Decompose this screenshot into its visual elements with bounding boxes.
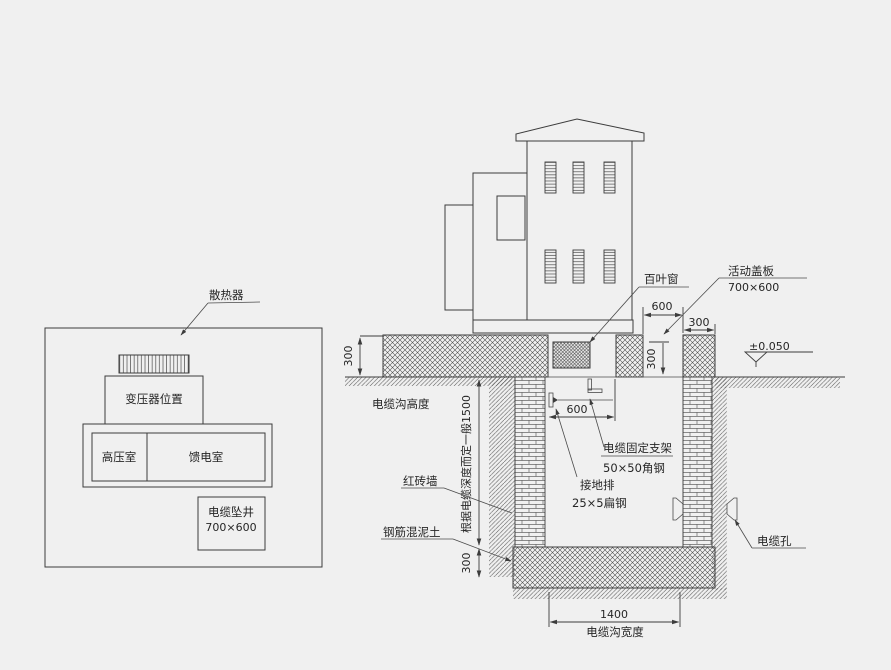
louver-window-block bbox=[553, 342, 590, 368]
earth-band-left bbox=[489, 377, 515, 577]
plan-radiator bbox=[119, 355, 189, 373]
dim-600-bracket: 600 bbox=[567, 403, 588, 416]
cable-shaft-size: 700×600 bbox=[205, 521, 256, 534]
brick-wall-left bbox=[515, 377, 545, 547]
ground-bar-label: 接地排 bbox=[580, 478, 615, 492]
brick-wall-right bbox=[683, 377, 712, 547]
brick-wall-label: 红砖墙 bbox=[403, 474, 438, 488]
bracket-label: 电缆固定支架 bbox=[603, 441, 672, 455]
feeder-room-label: 馈电室 bbox=[189, 450, 224, 464]
ground-hatch-under-slab bbox=[513, 588, 727, 599]
concrete-block-right bbox=[683, 335, 715, 377]
transformer-label: 变压器位置 bbox=[125, 392, 183, 406]
ground-hatch-left bbox=[345, 377, 512, 386]
radiator-label: 散热器 bbox=[209, 288, 244, 302]
dim-300-top: 300 bbox=[689, 316, 710, 329]
ground-bar-spec: 25×5扁钢 bbox=[572, 496, 627, 510]
dim-600-top: 600 bbox=[652, 300, 673, 313]
cover-label: 活动盖板 bbox=[728, 264, 774, 278]
concrete-top-slab bbox=[383, 335, 548, 377]
cable-hole-label: 电缆孔 bbox=[757, 534, 792, 548]
louver-label: 百叶窗 bbox=[644, 272, 679, 286]
dim-300-bottom: 300 bbox=[460, 553, 473, 574]
cable-shaft-label: 电缆坠井 bbox=[208, 505, 254, 519]
ground-hatch-right bbox=[715, 377, 840, 388]
level-value: ±0.050 bbox=[749, 340, 790, 353]
vent-louvers-bottom-row bbox=[545, 250, 615, 283]
trench-depth-note: 根据电缆深度而定一般1500 bbox=[459, 395, 473, 533]
dim-300-left: 300 bbox=[342, 346, 355, 367]
dim-1400: 1400 bbox=[600, 608, 628, 621]
bracket-spec: 50×50角钢 bbox=[603, 461, 665, 475]
concrete-block-mid bbox=[616, 335, 643, 377]
trench-width-label: 电缆沟宽度 bbox=[586, 625, 644, 639]
cover-size: 700×600 bbox=[728, 281, 779, 294]
trench-height-label: 电缆沟高度 bbox=[372, 397, 430, 411]
dim-300-opening: 300 bbox=[645, 349, 658, 370]
concrete-label: 钢筋混泥土 bbox=[383, 525, 441, 539]
concrete-bottom-slab bbox=[513, 547, 715, 588]
substation-drawing: 变压器位置 高压室 馈电室 电缆坠井 700×600 散热器 bbox=[0, 0, 891, 670]
hv-room-label: 高压室 bbox=[102, 450, 137, 464]
drawing-canvas: 变压器位置 高压室 馈电室 电缆坠井 700×600 散热器 bbox=[0, 0, 891, 670]
vent-louvers-top-row bbox=[545, 162, 615, 193]
